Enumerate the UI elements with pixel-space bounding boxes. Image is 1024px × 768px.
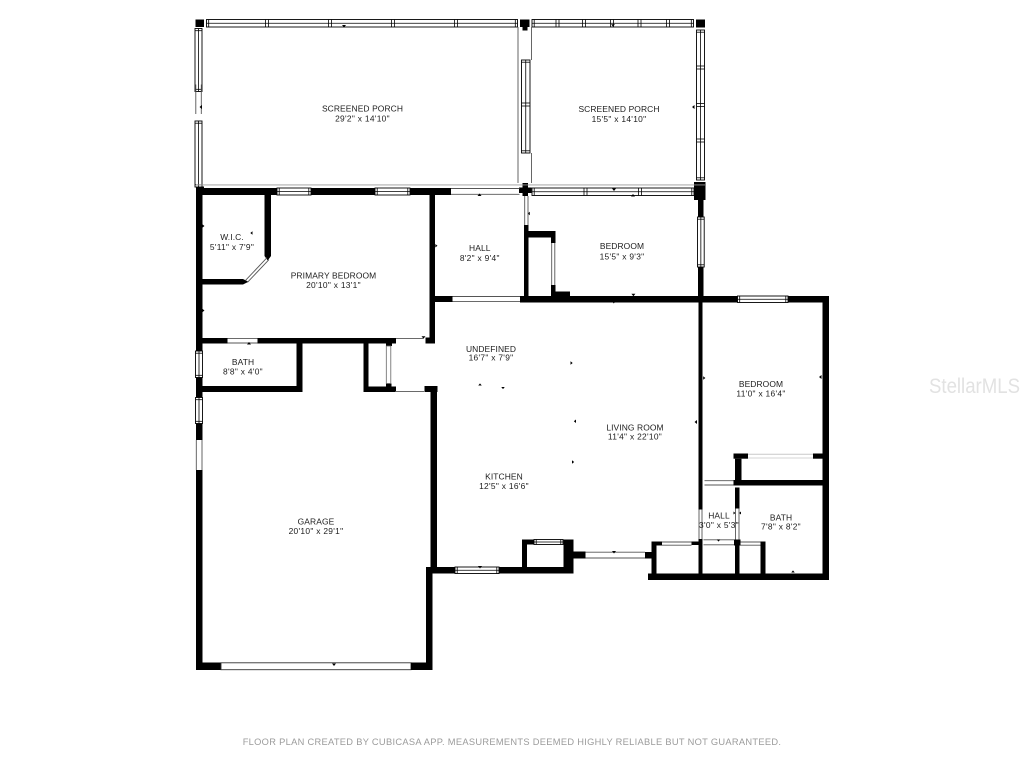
svg-text:BEDROOM: BEDROOM bbox=[739, 379, 783, 389]
svg-text:BATH: BATH bbox=[232, 357, 254, 367]
svg-text:20'10" x 29'1": 20'10" x 29'1" bbox=[289, 526, 344, 536]
svg-text:W.I.C.: W.I.C. bbox=[220, 232, 244, 242]
svg-text:12'5" x 16'6": 12'5" x 16'6" bbox=[479, 481, 529, 491]
svg-text:15'5" x 14'10": 15'5" x 14'10" bbox=[592, 114, 647, 124]
svg-text:29'2" x 14'10": 29'2" x 14'10" bbox=[335, 114, 390, 124]
svg-text:7'8" x 8'2": 7'8" x 8'2" bbox=[761, 522, 801, 532]
svg-text:GARAGE: GARAGE bbox=[298, 517, 335, 527]
svg-text:3'0" x 5'3": 3'0" x 5'3" bbox=[699, 520, 739, 530]
svg-text:FLOOR PLAN CREATED BY CUBICASA: FLOOR PLAN CREATED BY CUBICASA APP. MEAS… bbox=[243, 737, 782, 747]
svg-text:StellarMLS: StellarMLS bbox=[929, 374, 1020, 398]
svg-text:SCREENED PORCH: SCREENED PORCH bbox=[322, 104, 403, 114]
svg-text:11'0" x 16'4": 11'0" x 16'4" bbox=[736, 389, 785, 399]
svg-text:16'7" x 7'9": 16'7" x 7'9" bbox=[469, 353, 514, 363]
svg-text:SCREENED PORCH: SCREENED PORCH bbox=[578, 104, 659, 114]
svg-text:PRIMARY BEDROOM: PRIMARY BEDROOM bbox=[291, 271, 377, 281]
svg-text:20'10" x 13'1": 20'10" x 13'1" bbox=[306, 280, 361, 290]
svg-text:HALL: HALL bbox=[708, 511, 730, 521]
svg-text:15'5" x 9'3": 15'5" x 9'3" bbox=[600, 252, 645, 262]
svg-text:8'2" x 9'4": 8'2" x 9'4" bbox=[460, 253, 500, 263]
svg-text:KITCHEN: KITCHEN bbox=[485, 472, 523, 482]
svg-text:11'4" x 22'10": 11'4" x 22'10" bbox=[608, 432, 662, 442]
svg-text:HALL: HALL bbox=[469, 243, 491, 253]
svg-text:8'8" x 4'0": 8'8" x 4'0" bbox=[223, 367, 263, 377]
svg-text:BEDROOM: BEDROOM bbox=[600, 241, 644, 251]
svg-text:5'11" x 7'9": 5'11" x 7'9" bbox=[210, 242, 254, 252]
